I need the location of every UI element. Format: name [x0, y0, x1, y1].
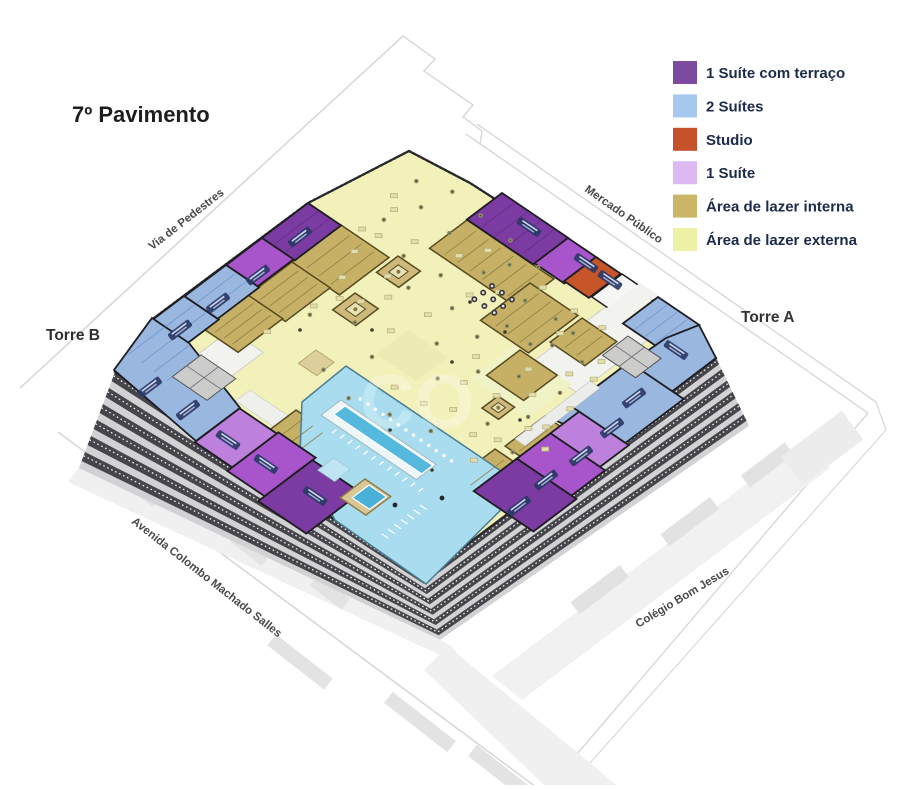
svg-text:2 Suítes: 2 Suítes	[706, 98, 764, 115]
svg-text:1 Suíte com terraço: 1 Suíte com terraço	[706, 65, 845, 82]
svg-text:Área de lazer externa: Área de lazer externa	[706, 232, 858, 249]
svg-text:Torre B: Torre B	[46, 327, 100, 344]
svg-text:Área de lazer interna: Área de lazer interna	[706, 199, 854, 216]
svg-text:Torre A: Torre A	[741, 309, 794, 326]
svg-text:1 Suíte: 1 Suíte	[706, 165, 755, 182]
svg-text:CO: CO	[360, 360, 474, 445]
svg-text:7º Pavimento: 7º Pavimento	[72, 102, 210, 127]
svg-text:Studio: Studio	[706, 132, 753, 149]
